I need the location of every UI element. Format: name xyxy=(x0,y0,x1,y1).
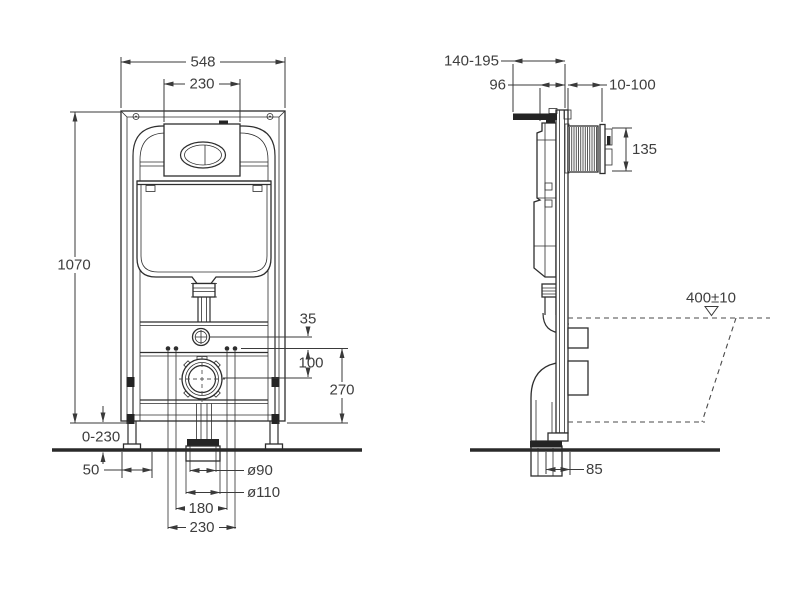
dim-outlet-center: 270 xyxy=(329,382,354,399)
side-view-dimensions: 140-195 96 10-100 135 400±10 85 xyxy=(444,53,736,479)
side-view-drawing xyxy=(470,64,770,476)
dim-leg-offset: 50 xyxy=(83,462,100,479)
dim-inlet-to-bolts: 100 xyxy=(298,355,323,372)
waste-pipe-front xyxy=(186,439,220,494)
dim-outlet-d110: ø110 xyxy=(247,484,280,501)
flush-stub xyxy=(568,328,588,348)
rail-foot xyxy=(548,433,568,441)
dim-frame-height: 1070 xyxy=(57,257,90,274)
toilet-bowl-outline xyxy=(568,318,770,422)
dim-outlet-offset: 85 xyxy=(586,461,603,478)
dim-cistern-depth: 96 xyxy=(489,77,506,94)
dim-frame-width: 548 xyxy=(190,54,215,71)
dim-bolt-spacing-inner: 180 xyxy=(188,500,213,517)
dim-plate-cutout: 135 xyxy=(632,141,657,158)
dim-leg-adjust: 0-230 xyxy=(82,429,120,446)
dim-outlet-d90: ø90 xyxy=(247,462,273,479)
waste-outlet-flange xyxy=(179,356,225,402)
dim-plate-width: 230 xyxy=(189,76,214,93)
waste-stub xyxy=(568,361,588,395)
technical-drawing-page: 548 230 1070 0-230 50 35 100 270 ø90 xyxy=(0,0,800,591)
shaft-end-plate xyxy=(600,125,605,174)
floor-collar xyxy=(530,441,562,448)
dim-bowl-height: 400±10 xyxy=(686,290,736,307)
installation-frame-diagram: 548 230 1070 0-230 50 35 100 270 ø90 xyxy=(0,0,800,591)
cistern-tank xyxy=(137,181,271,284)
dim-inlet-offset: 35 xyxy=(300,311,317,328)
flush-shaft xyxy=(565,124,612,174)
dim-finish-range: 10-100 xyxy=(609,77,656,94)
wall-bracket-bar xyxy=(513,114,557,121)
frame-rail-side xyxy=(556,110,568,433)
dim-depth-range: 140-195 xyxy=(444,53,499,70)
level-indicator-icon xyxy=(705,307,718,316)
dim-bolt-spacing-outer: 230 xyxy=(189,519,214,536)
water-inlet-port xyxy=(193,329,210,346)
